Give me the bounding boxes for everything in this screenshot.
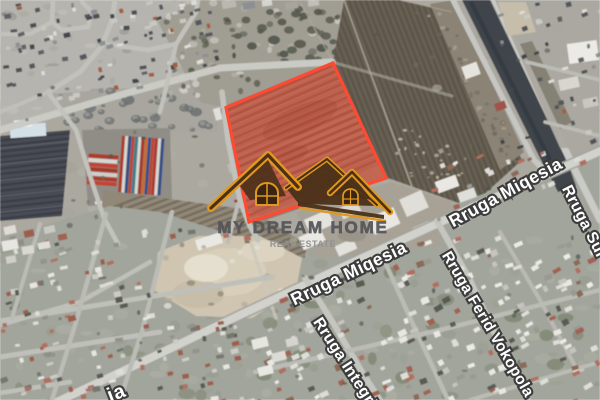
svg-text:REAL ESTATE: REAL ESTATE xyxy=(270,239,336,249)
svg-text:MY DREAM HOME: MY DREAM HOME xyxy=(217,218,388,237)
